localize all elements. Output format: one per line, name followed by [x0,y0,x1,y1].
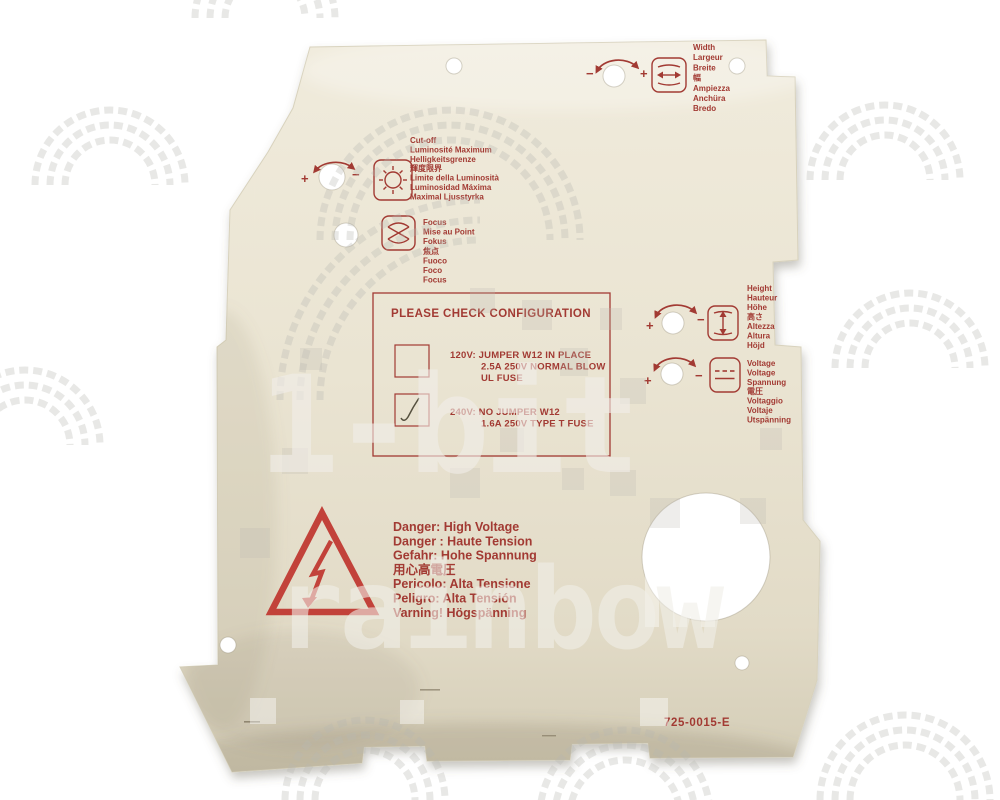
watermark-rainbow-arcs-left [0,370,100,445]
screw-hole-top-center [446,58,462,74]
voltage-plus: + [644,373,652,388]
height-minus: − [697,312,705,327]
watermark-rainbow-arcs-top-right [810,105,960,180]
part-number: 725-0015-E [664,717,730,729]
photo-stage: − + WidthLargeurBreite幅AmpiezzaAnchüraBr… [0,0,1000,800]
width-adjust-hole [603,65,625,87]
watermark-rainbow-arcs-bottom-right [820,715,990,800]
height-plus: + [646,318,654,333]
option-240v-line1: 240V: NO JUMPER W12 [450,407,560,418]
focus-adjust-hole [334,223,358,247]
width-plus: + [640,66,648,81]
watermark-rainbow-arcs-top-left [35,110,185,185]
option-240v-line2: 1.6A 250V TYPE T FUSE [481,419,594,430]
label-plate: − + WidthLargeurBreite幅AmpiezzaAnchüraBr… [160,30,820,800]
screw-hole-top-right [729,58,745,74]
voltage-adjust-hole [661,363,683,385]
cutoff-adjust-hole [319,164,345,190]
option-120v-line2: 2.5A 250V NORMAL BLOW [481,362,606,373]
watermark-rainbow-arcs-top-edge [195,0,335,18]
voltage-minus: − [695,368,703,383]
width-minus: − [586,66,594,81]
option-120v-line3: UL FUSE [481,373,523,384]
watermark-rainbow-arcs-right [835,293,985,368]
cutoff-plus: + [301,171,309,186]
height-adjust-hole [662,312,684,334]
screw-hole-bottom-right [735,656,749,670]
tube-neck-cutout [642,493,770,621]
configuration-title: PLEASE CHECK CONFIGURATION [391,308,591,320]
cutoff-minus: − [352,167,360,182]
label-photo: − + WidthLargeurBreite幅AmpiezzaAnchüraBr… [0,0,1000,800]
option-120v-line1: 120V: JUMPER W12 IN PLACE [450,350,591,361]
screw-hole-bottom-left [220,637,236,653]
